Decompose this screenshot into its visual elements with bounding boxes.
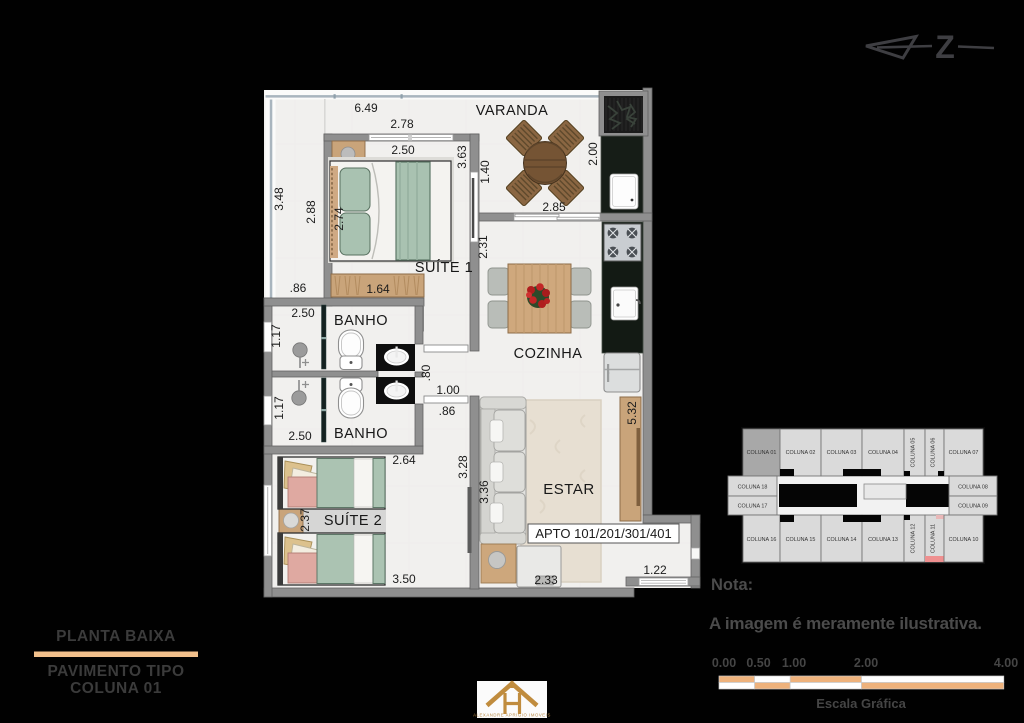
svg-text:COLUNA 17: COLUNA 17 <box>738 504 768 510</box>
svg-text:Escala Gráfica: Escala Gráfica <box>816 696 906 711</box>
svg-text:COLUNA 04: COLUNA 04 <box>868 450 898 456</box>
svg-text:3.36: 3.36 <box>477 480 491 504</box>
svg-text:1.64: 1.64 <box>366 282 390 296</box>
svg-text:2.74: 2.74 <box>332 207 346 231</box>
svg-text:1.17: 1.17 <box>269 324 283 348</box>
svg-text:1.17: 1.17 <box>272 396 286 420</box>
svg-text:2.50: 2.50 <box>291 306 315 320</box>
svg-text:2.88: 2.88 <box>304 200 318 224</box>
svg-text:COLUNA 06: COLUNA 06 <box>931 438 937 468</box>
svg-text:ALEXANDRE APRIGIO IMOVEIS: ALEXANDRE APRIGIO IMOVEIS <box>473 713 551 718</box>
svg-text:COLUNA 05: COLUNA 05 <box>911 438 917 468</box>
svg-text:1.22: 1.22 <box>643 563 667 577</box>
svg-text:COLUNA 02: COLUNA 02 <box>786 450 816 456</box>
svg-text:2.64: 2.64 <box>392 453 416 467</box>
svg-text:COLUNA 09: COLUNA 09 <box>958 504 988 510</box>
svg-text:COLUNA 15: COLUNA 15 <box>786 537 816 543</box>
svg-text:PAVIMENTO TIPO: PAVIMENTO TIPO <box>47 663 184 680</box>
svg-text:BANHO: BANHO <box>334 426 388 442</box>
svg-text:.86: .86 <box>290 281 307 295</box>
svg-text:2.50: 2.50 <box>391 143 415 157</box>
svg-text:BANHO: BANHO <box>334 313 388 329</box>
svg-text:3.63: 3.63 <box>455 145 469 169</box>
svg-text:Nota:: Nota: <box>711 576 753 594</box>
svg-text:VARANDA: VARANDA <box>476 103 549 119</box>
svg-text:COLUNA 11: COLUNA 11 <box>931 524 937 553</box>
svg-text:4.00: 4.00 <box>994 656 1018 670</box>
svg-text:SUÍTE 2: SUÍTE 2 <box>324 512 382 529</box>
svg-text:PLANTA BAIXA: PLANTA BAIXA <box>56 628 176 645</box>
svg-text:.80: .80 <box>419 364 433 381</box>
svg-text:3.48: 3.48 <box>272 187 286 211</box>
svg-text:3.50: 3.50 <box>392 572 416 586</box>
svg-text:COLUNA 13: COLUNA 13 <box>868 537 898 543</box>
svg-text:COLUNA 07: COLUNA 07 <box>949 450 979 456</box>
svg-text:COLUNA 10: COLUNA 10 <box>949 537 979 543</box>
svg-text:COLUNA 01: COLUNA 01 <box>70 680 162 697</box>
svg-text:1.40: 1.40 <box>478 160 492 184</box>
svg-text:0.50: 0.50 <box>746 656 770 670</box>
svg-text:COLUNA 01: COLUNA 01 <box>747 450 777 456</box>
svg-text:2.31: 2.31 <box>476 235 490 259</box>
svg-text:APTO 101/201/301/401: APTO 101/201/301/401 <box>535 526 671 541</box>
svg-text:COLUNA 03: COLUNA 03 <box>827 450 857 456</box>
svg-text:COLUNA 14: COLUNA 14 <box>827 537 857 543</box>
svg-text:SUÍTE 1: SUÍTE 1 <box>415 259 473 276</box>
svg-text:A imagem é meramente ilustrati: A imagem é meramente ilustrativa. <box>709 614 982 633</box>
svg-text:COZINHA: COZINHA <box>514 346 583 362</box>
svg-text:2.78: 2.78 <box>390 117 414 131</box>
svg-text:2.00: 2.00 <box>586 142 600 166</box>
svg-text:2.50: 2.50 <box>288 429 312 443</box>
svg-text:1.00: 1.00 <box>436 383 460 397</box>
svg-text:3.28: 3.28 <box>456 455 470 479</box>
svg-text:2.85: 2.85 <box>542 200 566 214</box>
svg-text:Z: Z <box>935 29 955 65</box>
svg-text:COLUNA 12: COLUNA 12 <box>911 524 917 554</box>
svg-text:COLUNA 18: COLUNA 18 <box>738 485 768 491</box>
svg-text:0.00: 0.00 <box>712 656 736 670</box>
svg-text:.86: .86 <box>439 404 456 418</box>
svg-text:2.00: 2.00 <box>854 656 878 670</box>
svg-text:1.00: 1.00 <box>782 656 806 670</box>
svg-text:COLUNA 08: COLUNA 08 <box>958 485 988 491</box>
svg-text:2.33: 2.33 <box>534 573 558 587</box>
svg-text:COLUNA 16: COLUNA 16 <box>747 537 777 543</box>
svg-text:ESTAR: ESTAR <box>543 481 594 498</box>
svg-text:2.37: 2.37 <box>298 508 312 532</box>
svg-text:6.49: 6.49 <box>354 101 378 115</box>
svg-text:5.32: 5.32 <box>625 401 639 425</box>
